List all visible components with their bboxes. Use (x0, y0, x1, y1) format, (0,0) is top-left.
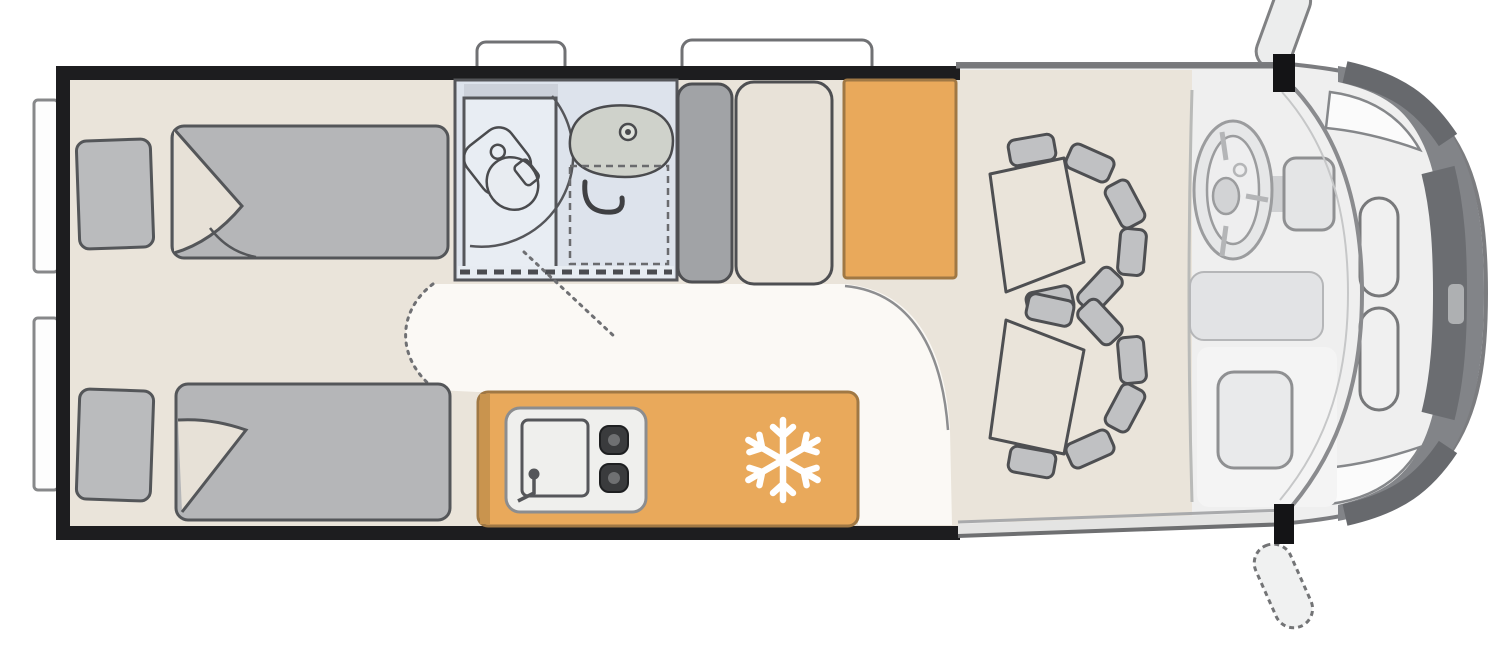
rear-door-window-bottom (34, 318, 58, 490)
hood-slat-bottom (1360, 308, 1398, 410)
kitchen-edge-strip (480, 394, 490, 524)
washbasin-drain-dot (625, 129, 631, 135)
mirror-mount-bottom (1274, 504, 1294, 544)
rear-door-window-top (34, 100, 58, 272)
steering-wheel (1194, 121, 1272, 259)
hood-slat-top (1360, 198, 1398, 296)
front-handle-mark (1448, 284, 1464, 324)
single-bed-top (76, 126, 448, 258)
pillow (76, 389, 154, 502)
wall-rear (56, 66, 70, 540)
tall-cabinet (844, 80, 956, 278)
wall-bottom (56, 526, 960, 540)
side-mirror-bottom (1248, 538, 1319, 634)
bathroom (455, 80, 677, 280)
kitchen (478, 392, 858, 526)
glovebox (1218, 372, 1292, 468)
wall-top (56, 66, 960, 80)
instrument-panel (1284, 158, 1334, 230)
pillow (76, 139, 154, 250)
floorplan-canvas (0, 0, 1500, 665)
bench-seat (736, 82, 832, 284)
single-bed-bottom (76, 384, 450, 520)
mirror-mount-top (1273, 54, 1295, 92)
floorplan-svg (0, 0, 1500, 665)
wardrobe (678, 84, 732, 282)
sink-faucet (529, 469, 540, 480)
dashboard-center-console (1190, 272, 1323, 340)
